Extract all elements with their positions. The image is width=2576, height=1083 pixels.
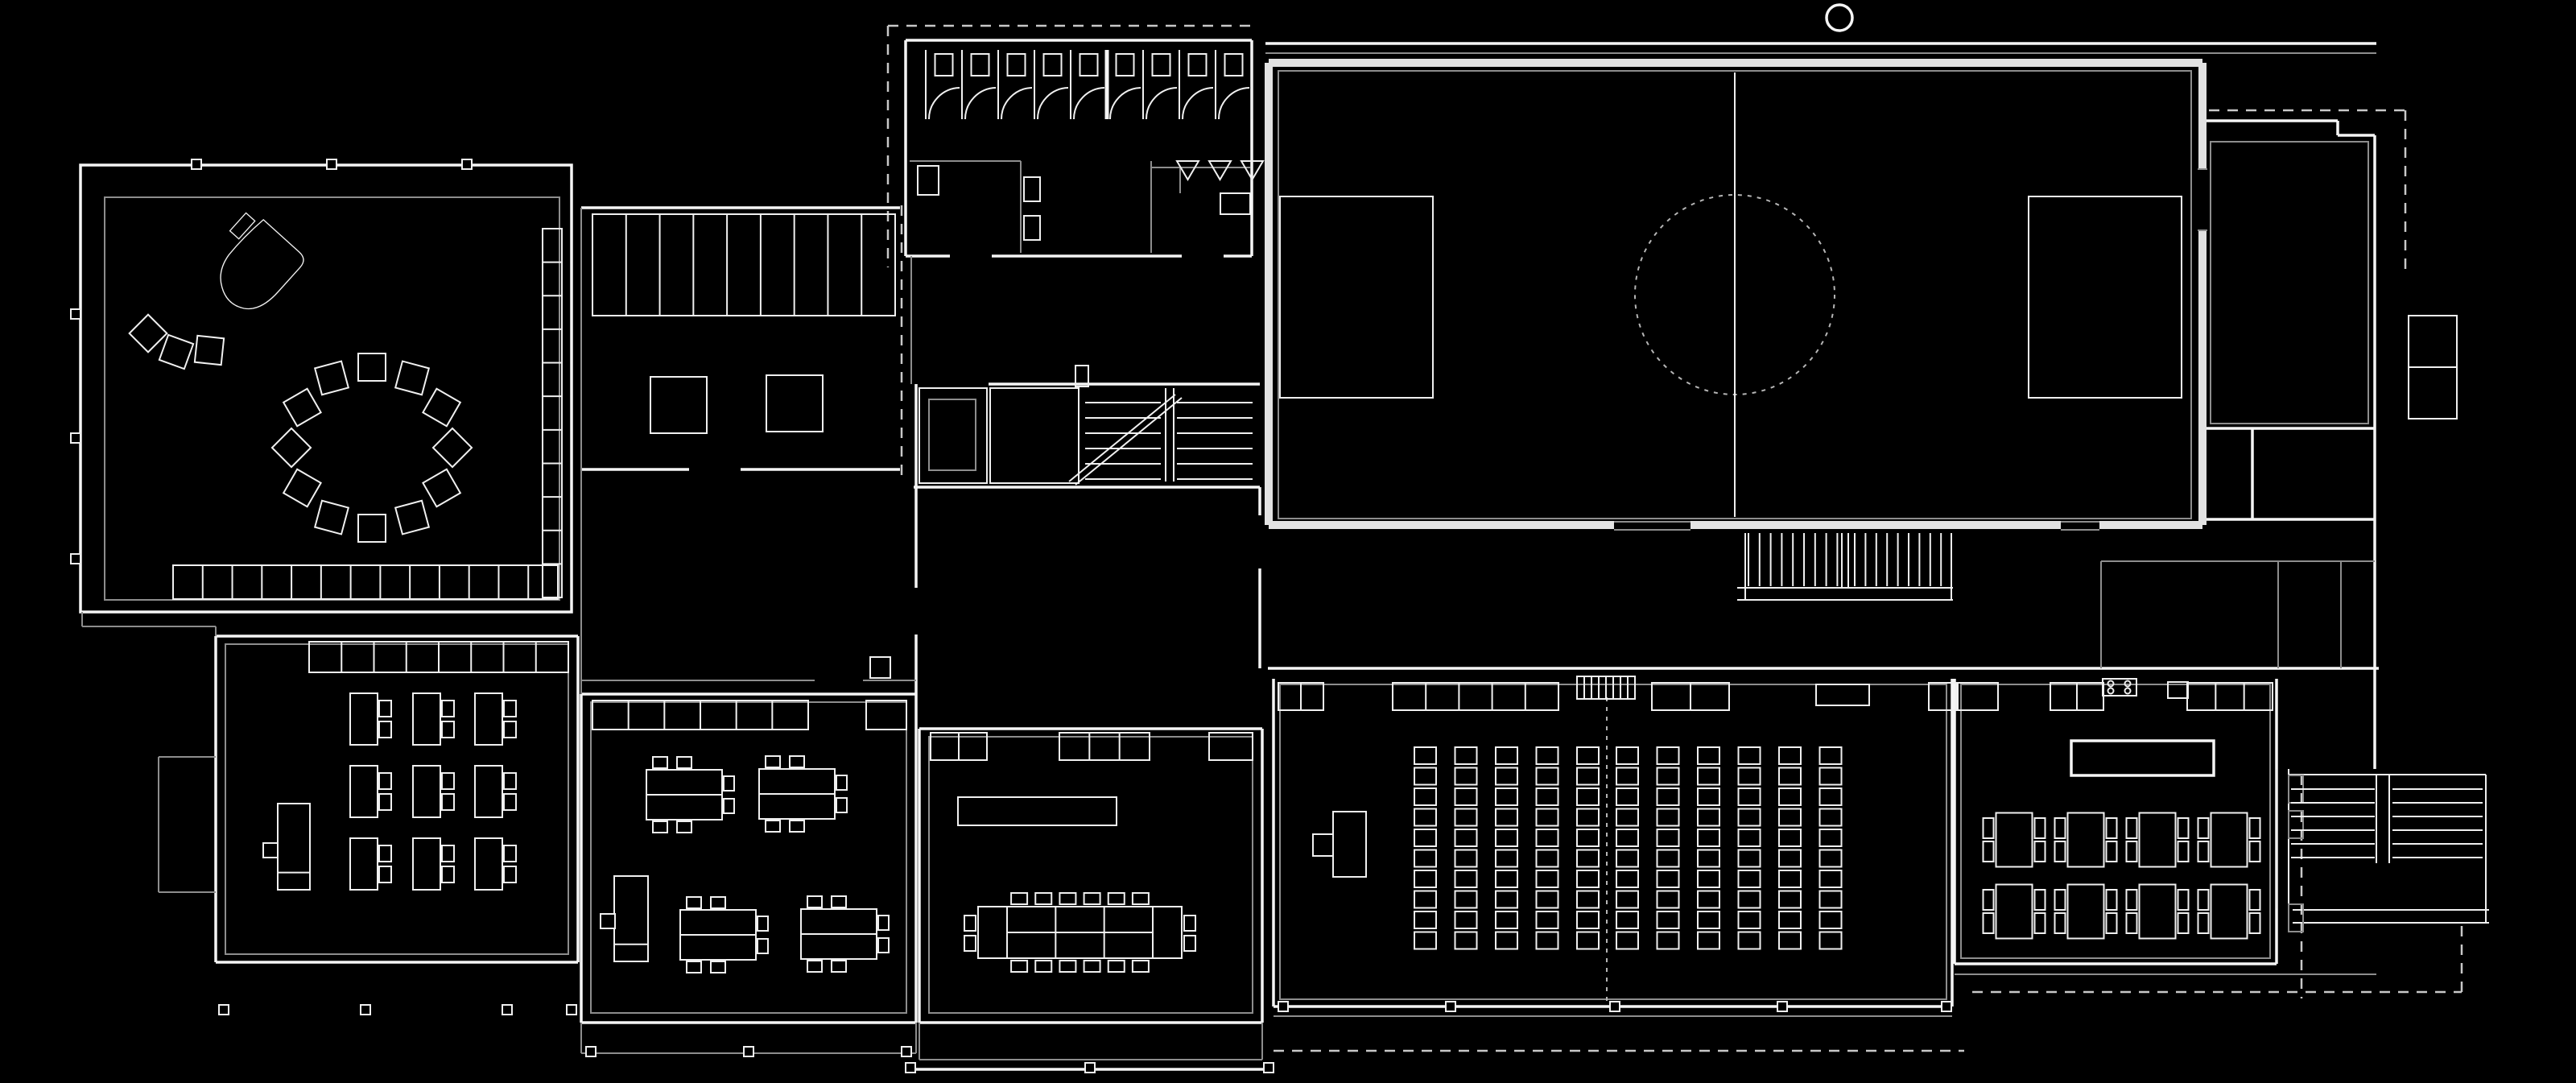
- chair: [766, 821, 780, 832]
- chair: [832, 896, 846, 907]
- chair: [2250, 841, 2260, 862]
- auditorium-seat: [1537, 747, 1558, 764]
- auditorium-seat: [1577, 850, 1599, 867]
- auditorium-seat: [1577, 829, 1599, 846]
- chair: [195, 336, 224, 365]
- chair: [2055, 818, 2066, 838]
- auditorium-seat: [1739, 788, 1761, 805]
- auditorium-seat: [1577, 768, 1599, 785]
- cubby-band: [2187, 683, 2273, 710]
- stall-door-arc: [1110, 88, 1141, 119]
- chair: [2127, 841, 2137, 862]
- chair: [358, 515, 386, 542]
- auditorium-seat: [1616, 768, 1638, 785]
- chair: [2198, 818, 2209, 838]
- auditorium-seat: [1698, 768, 1719, 785]
- chair: [2198, 913, 2209, 933]
- auditorium-seat: [1455, 850, 1477, 867]
- stair-landing: [990, 388, 1079, 483]
- chair: [315, 362, 349, 395]
- chair: [601, 914, 615, 928]
- gym-south-stair-frame: [1737, 533, 1953, 601]
- chair: [130, 315, 167, 353]
- chair: [272, 428, 311, 467]
- chair: [1984, 818, 1994, 838]
- table: [2140, 885, 2176, 939]
- fixture: [1220, 193, 1250, 214]
- stall-door-arc: [1183, 88, 1213, 119]
- chair: [423, 469, 460, 506]
- auditorium-seat: [1657, 911, 1679, 928]
- auditorium-seating: [1616, 747, 1842, 949]
- auditorium-seat: [1698, 850, 1719, 867]
- auditorium-seat: [1496, 768, 1517, 785]
- chair: [423, 389, 460, 426]
- desk: [350, 838, 378, 890]
- auditorium-seat: [1455, 809, 1477, 826]
- table: [2140, 813, 2176, 867]
- chair: [2127, 818, 2137, 838]
- auditorium-seat: [1616, 809, 1638, 826]
- wall-post: [1777, 1002, 1787, 1011]
- wall-post: [1264, 1063, 1274, 1073]
- chair: [1084, 893, 1100, 904]
- toilet: [935, 54, 953, 76]
- wall-post: [1610, 1002, 1620, 1011]
- fixture: [870, 657, 890, 678]
- cubby-band: [173, 565, 558, 599]
- auditorium-seat: [1820, 809, 1842, 826]
- chair: [836, 775, 847, 790]
- chair: [1059, 961, 1075, 972]
- auditorium-seat: [1455, 932, 1477, 949]
- auditorium-seat: [1779, 932, 1801, 949]
- kitchen-stove: [2103, 679, 2136, 696]
- auditorium-seat: [1616, 870, 1638, 887]
- chair: [358, 353, 386, 381]
- auditorium-seat: [1414, 870, 1436, 887]
- chair: [687, 897, 701, 908]
- auditorium-seat: [1820, 788, 1842, 805]
- auditorium-seat: [1779, 768, 1801, 785]
- floor-plan-canvas: [0, 0, 2576, 1083]
- chair: [433, 428, 472, 467]
- auditorium-seat: [1657, 891, 1679, 908]
- chair: [2250, 913, 2260, 933]
- cubby-band: [1958, 683, 1998, 710]
- auditorium-seat: [1537, 911, 1558, 928]
- auditorium-seat: [1820, 870, 1842, 887]
- wall-post: [327, 159, 336, 169]
- gym-key-left: [1280, 196, 1433, 398]
- desk: [413, 838, 440, 890]
- auditorium-seat: [1698, 747, 1719, 764]
- auditorium-seat: [1455, 747, 1477, 764]
- chair: [964, 916, 976, 931]
- chair-circle: [272, 353, 472, 542]
- auditorium-seat: [1414, 932, 1436, 949]
- chair: [677, 821, 691, 833]
- chair: [2035, 890, 2046, 910]
- fixture: [1333, 812, 1366, 877]
- wall-post: [71, 433, 80, 443]
- chair: [379, 701, 391, 717]
- auditorium-seat: [1414, 809, 1436, 826]
- auditorium-seat: [1739, 747, 1761, 764]
- auditorium-seat: [1496, 747, 1517, 764]
- stall-door-arc: [1146, 88, 1177, 119]
- auditorium-seat: [1657, 850, 1679, 867]
- chair: [836, 798, 847, 812]
- chair: [2250, 818, 2260, 838]
- auditorium-seat: [1537, 768, 1558, 785]
- auditorium-seat: [1739, 891, 1761, 908]
- chair: [504, 701, 516, 717]
- wall-post: [1446, 1002, 1455, 1011]
- chair: [2107, 841, 2117, 862]
- fixture-rects: [650, 375, 823, 433]
- wall-post: [586, 1047, 596, 1056]
- auditorium-seat: [1779, 911, 1801, 928]
- chair: [442, 794, 454, 810]
- fixture: [1816, 684, 1869, 705]
- chair: [1059, 893, 1075, 904]
- auditorium-seat: [1414, 850, 1436, 867]
- chair: [2250, 890, 2260, 910]
- toilet: [1117, 54, 1134, 76]
- wall-post: [906, 1063, 915, 1073]
- wall-post: [71, 309, 80, 319]
- fixture: [650, 377, 707, 433]
- elevator-cab: [929, 399, 976, 470]
- table: [2068, 813, 2104, 867]
- chair: [1133, 961, 1149, 972]
- teacher-desk: [614, 876, 648, 961]
- auditorium-seat: [1496, 911, 1517, 928]
- auditorium-seat: [1577, 870, 1599, 887]
- wall-post: [567, 1005, 576, 1015]
- table: [1996, 885, 2033, 939]
- auditorium-seat: [1698, 891, 1719, 908]
- chair: [379, 721, 391, 738]
- auditorium-seat: [1657, 768, 1679, 785]
- burner: [2125, 688, 2131, 694]
- auditorium-seat: [1739, 932, 1761, 949]
- urinals: [1177, 161, 1263, 180]
- cubby-band: [1393, 683, 1558, 710]
- auditorium-seat: [1779, 850, 1801, 867]
- chair: [1084, 961, 1100, 972]
- auditorium-seat: [1537, 809, 1558, 826]
- stall-door-arc: [1001, 88, 1032, 119]
- fixture-rects: [918, 166, 1250, 240]
- chair: [1108, 893, 1125, 904]
- auditorium-seat: [1414, 911, 1436, 928]
- chair: [1035, 961, 1051, 972]
- auditorium-seat: [1537, 891, 1558, 908]
- auditorium-seat: [1577, 891, 1599, 908]
- auditorium-seat: [1820, 932, 1842, 949]
- piano-bench: [230, 213, 255, 238]
- stall-door-arc: [1219, 88, 1249, 119]
- desk: [475, 838, 502, 890]
- desk: [278, 804, 310, 890]
- chair: [283, 389, 320, 426]
- auditorium-seat: [1537, 870, 1558, 887]
- auditorium-seat: [1820, 768, 1842, 785]
- chair: [395, 362, 429, 395]
- auditorium-seat: [1698, 788, 1719, 805]
- dining-tables: [1984, 813, 2260, 939]
- fixture: [766, 375, 823, 432]
- auditorium-seat: [1616, 891, 1638, 908]
- auditorium-seat: [1414, 747, 1436, 764]
- toilet: [1189, 54, 1207, 76]
- chair: [807, 961, 822, 972]
- auditorium-seat: [1537, 932, 1558, 949]
- chair: [442, 701, 454, 717]
- fixture: [1024, 216, 1040, 240]
- chair: [2055, 913, 2066, 933]
- auditorium-seat: [1698, 870, 1719, 887]
- auditorium-seat: [1496, 788, 1517, 805]
- auditorium-seat: [1739, 829, 1761, 846]
- wall-post: [361, 1005, 370, 1015]
- toilet: [1080, 54, 1098, 76]
- wall-post: [192, 159, 201, 169]
- fixture: [1024, 177, 1040, 201]
- auditorium-seat: [1455, 911, 1477, 928]
- auditorium-seat: [1414, 829, 1436, 846]
- classroom-desks: [350, 693, 516, 890]
- auditorium-seat: [1698, 809, 1719, 826]
- chair: [2107, 818, 2117, 838]
- stall-door-arc: [1074, 88, 1104, 119]
- teacher-desk: [278, 804, 310, 890]
- auditorium-seat: [1739, 870, 1761, 887]
- auditorium-seat: [1537, 788, 1558, 805]
- auditorium-seat: [1455, 870, 1477, 887]
- chair: [442, 866, 454, 883]
- toilet: [1044, 54, 1062, 76]
- auditorium-seat: [1616, 932, 1638, 949]
- auditorium-seat: [1414, 891, 1436, 908]
- chair: [687, 961, 701, 973]
- chair: [2035, 818, 2046, 838]
- wall-post: [744, 1047, 753, 1056]
- toilet: [1225, 54, 1243, 76]
- chair: [724, 776, 734, 791]
- chair: [758, 916, 768, 931]
- burner: [2108, 688, 2114, 694]
- chair: [724, 799, 734, 813]
- chair: [442, 773, 454, 789]
- auditorium-seating: [1414, 747, 1599, 949]
- chair: [2178, 841, 2189, 862]
- auditorium-seat: [1657, 829, 1679, 846]
- gym-key-right: [2029, 196, 2182, 398]
- chair: [504, 845, 516, 862]
- chair: [2055, 841, 2066, 862]
- wall-post: [1085, 1063, 1095, 1073]
- chair: [2055, 890, 2066, 910]
- auditorium-seat: [1616, 829, 1638, 846]
- wc-stalls: [926, 50, 1252, 119]
- chair: [1108, 961, 1125, 972]
- chair: [711, 961, 725, 973]
- chair: [2198, 841, 2209, 862]
- desk: [475, 766, 502, 817]
- chair: [2107, 913, 2117, 933]
- chair: [504, 794, 516, 810]
- toilet: [1008, 54, 1026, 76]
- stove-outline: [2103, 679, 2136, 696]
- auditorium-seat: [1496, 829, 1517, 846]
- auditorium-seat: [1577, 747, 1599, 764]
- auditorium-seat: [1820, 911, 1842, 928]
- auditorium-seat: [1414, 768, 1436, 785]
- auditorium-seat: [1537, 850, 1558, 867]
- chair: [315, 501, 349, 535]
- stall-door-arc: [929, 88, 960, 119]
- chair: [2127, 913, 2137, 933]
- wall-post: [1942, 1002, 1951, 1011]
- chair: [1984, 913, 1994, 933]
- auditorium-seat: [1616, 850, 1638, 867]
- floor-plan-page: [0, 0, 2576, 1083]
- chair: [504, 721, 516, 738]
- auditorium-seat: [1739, 809, 1761, 826]
- desk: [350, 693, 378, 745]
- chair: [2178, 890, 2189, 910]
- auditorium-seat: [1657, 870, 1679, 887]
- auditorium-seat: [1779, 809, 1801, 826]
- chair: [1984, 841, 1994, 862]
- stall-door-arc: [965, 88, 996, 119]
- chair: [379, 866, 391, 883]
- auditorium-seat: [1455, 891, 1477, 908]
- toilet: [1153, 54, 1170, 76]
- table: [2211, 813, 2248, 867]
- chair: [1011, 961, 1027, 972]
- chair: [283, 469, 320, 506]
- fixture: [958, 797, 1117, 825]
- auditorium-seat: [1455, 829, 1477, 846]
- group-tables: [646, 756, 889, 973]
- cubby-band: [866, 701, 906, 730]
- auditorium-seat: [1414, 788, 1436, 805]
- desk: [350, 766, 378, 817]
- chair: [653, 757, 667, 768]
- chair: [1133, 893, 1149, 904]
- auditorium-seat: [1739, 911, 1761, 928]
- chair: [766, 756, 780, 767]
- chair: [790, 821, 804, 832]
- piano-body: [206, 218, 308, 321]
- grand-piano: [195, 208, 308, 320]
- chair: [711, 897, 725, 908]
- chair: [1184, 916, 1195, 931]
- stall-door-arc: [1038, 88, 1068, 119]
- auditorium-seat: [1657, 788, 1679, 805]
- auditorium-seat: [1577, 932, 1599, 949]
- chair: [379, 845, 391, 862]
- auditorium-seat: [1455, 788, 1477, 805]
- auditorium-seat: [1616, 747, 1638, 764]
- auditorium-seat: [1739, 768, 1761, 785]
- chair: [1984, 890, 1994, 910]
- chair: [653, 821, 667, 833]
- auditorium-seat: [1577, 809, 1599, 826]
- chair: [677, 757, 691, 768]
- east-exterior-stair-frame: [2277, 769, 2489, 923]
- desk: [475, 693, 502, 745]
- auditorium-seat: [1537, 829, 1558, 846]
- auditorium-seat: [1657, 809, 1679, 826]
- auditorium-seat: [1779, 829, 1801, 846]
- auditorium-seat: [1616, 788, 1638, 805]
- desk: [413, 693, 440, 745]
- chair: [878, 916, 889, 930]
- chair: [807, 896, 822, 907]
- chair: [159, 335, 193, 369]
- auditorium-seat: [1820, 850, 1842, 867]
- urinal: [1209, 161, 1231, 180]
- chair: [2127, 890, 2137, 910]
- chair: [442, 721, 454, 738]
- chair: [758, 939, 768, 953]
- auditorium-seat: [1496, 809, 1517, 826]
- auditorium-seat: [1779, 788, 1801, 805]
- chair: [2178, 818, 2189, 838]
- table: [2068, 885, 2104, 939]
- wall-post: [1278, 1002, 1288, 1011]
- chair: [2107, 890, 2117, 910]
- chair: [504, 866, 516, 883]
- auditorium-seat: [1616, 911, 1638, 928]
- chair: [2198, 890, 2209, 910]
- toilet: [972, 54, 989, 76]
- wall-post: [902, 1047, 911, 1056]
- projection-screen-hatch: [1577, 676, 1635, 699]
- table: [1996, 813, 2033, 867]
- chair: [964, 936, 976, 951]
- auditorium-seat: [1698, 932, 1719, 949]
- chair: [395, 501, 429, 535]
- auditorium-seat: [1698, 829, 1719, 846]
- table: [2211, 885, 2248, 939]
- auditorium-seat: [1496, 932, 1517, 949]
- auditorium-seat: [1657, 932, 1679, 949]
- wall-post: [219, 1005, 229, 1015]
- wall-post: [502, 1005, 512, 1015]
- auditorium-seat: [1820, 829, 1842, 846]
- chair: [2035, 841, 2046, 862]
- chair: [263, 843, 278, 858]
- chair: [878, 938, 889, 953]
- chair: [2178, 913, 2189, 933]
- chair: [442, 845, 454, 862]
- auditorium-seat: [1779, 891, 1801, 908]
- auditorium-seat: [1577, 788, 1599, 805]
- auditorium-seat: [1820, 891, 1842, 908]
- auditorium-seat: [1577, 911, 1599, 928]
- auditorium-seat: [1496, 891, 1517, 908]
- auditorium-seat: [1739, 850, 1761, 867]
- chair: [1011, 893, 1027, 904]
- fixture: [1313, 834, 1333, 856]
- chair: [1184, 936, 1195, 951]
